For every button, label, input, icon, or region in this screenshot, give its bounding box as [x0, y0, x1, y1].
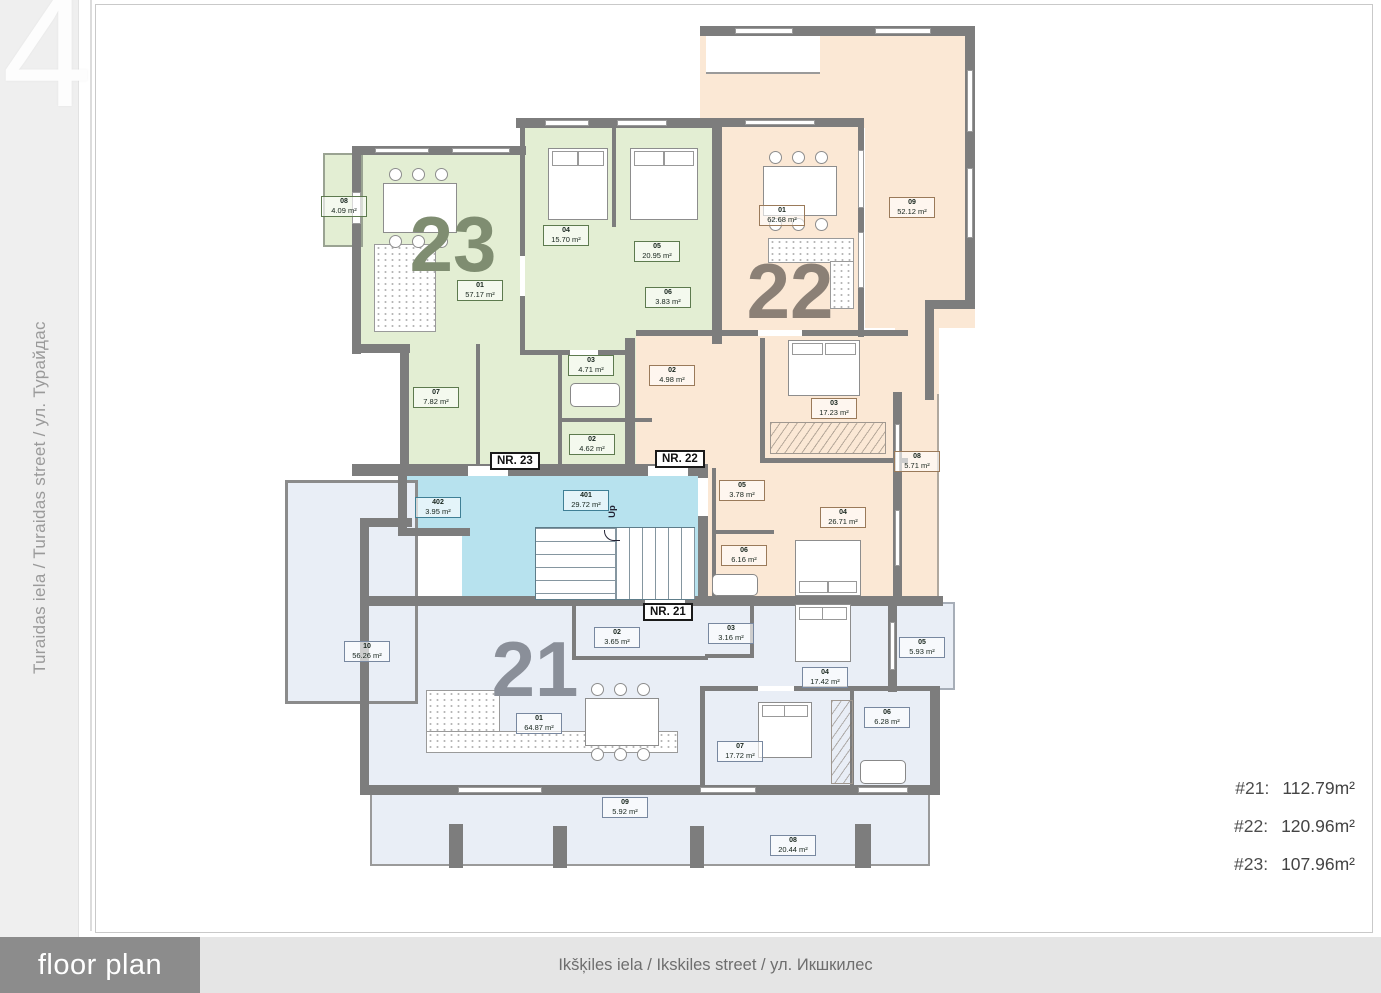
window [875, 28, 931, 34]
window [890, 622, 895, 670]
room-label: 0952.12 m² [889, 197, 935, 218]
wall-segment [352, 146, 361, 354]
bed [630, 148, 698, 220]
window [617, 120, 667, 126]
wall-segment [712, 530, 774, 534]
window [745, 120, 815, 125]
room-label: 023.65 m² [594, 627, 640, 648]
wall-segment [558, 418, 652, 422]
chair [815, 218, 828, 231]
room-label: 034.71 m² [568, 355, 614, 376]
wall-segment [360, 518, 369, 604]
street-name-bottom: Ikšķiles iela / Ikskiles street / ул. Ик… [200, 937, 1381, 993]
apartment-number-22: 22 [735, 252, 845, 330]
room-label: 085.71 m² [894, 451, 940, 472]
wall-segment [398, 528, 470, 536]
bathtub [860, 760, 906, 784]
stairs-flight [536, 528, 615, 599]
street-name-vertical: Turaidas iela / Turaidas street / ул. Ту… [30, 322, 50, 674]
window [545, 120, 589, 126]
bed [788, 340, 860, 396]
floor-plan-page: { "floor": {"number": "4"}, "sidebar": {… [0, 0, 1381, 993]
wall-segment [705, 654, 754, 658]
wall-segment [712, 118, 722, 344]
wall-pier [553, 826, 567, 868]
terrace-notch [706, 30, 820, 74]
summary-label: #22: [1234, 816, 1268, 837]
room-label: 063.83 m² [645, 287, 691, 308]
window [700, 787, 756, 793]
stairs-up-label: Up [607, 505, 618, 518]
bathtub [712, 574, 758, 596]
room-label: 0415.70 m² [543, 225, 589, 246]
door-opening [520, 256, 525, 296]
room-label: 0157.17 m² [457, 280, 503, 301]
summary-row: #21:112.79m² [1100, 778, 1355, 816]
wall-segment [520, 125, 525, 355]
window [967, 70, 973, 132]
bed [548, 148, 608, 220]
room-label: 4023.95 m² [415, 497, 461, 518]
door-label-nr-22: NR. 22 [655, 450, 705, 468]
area-summary: #21:112.79m² #22:120.96m² #23:107.96m² [1100, 778, 1355, 892]
apartment-22-terrace [865, 28, 975, 328]
window [858, 150, 864, 208]
room-label: 066.28 m² [864, 707, 910, 728]
summary-value: 107.96m² [1281, 854, 1355, 875]
chair [637, 748, 650, 761]
wall-pier [690, 826, 704, 868]
room-label: 033.16 m² [708, 623, 754, 644]
chair [614, 683, 627, 696]
wall-segment [930, 688, 940, 795]
room-label: 0164.87 m² [516, 713, 562, 734]
window [452, 148, 510, 153]
wall-segment [760, 338, 765, 460]
room-label: 1056.26 m² [344, 641, 390, 662]
room-label: 055.93 m² [899, 637, 945, 658]
door-opening [758, 686, 794, 691]
door-label-nr-21: NR. 21 [643, 603, 693, 621]
wall-segment [760, 458, 908, 463]
room-label: 40129.72 m² [563, 490, 609, 511]
room-label: 0162.68 m² [759, 205, 805, 226]
floor-plan-title: floor plan [0, 937, 200, 993]
room-label: 0820.44 m² [770, 835, 816, 856]
window [735, 28, 793, 34]
wall-segment [476, 344, 480, 468]
summary-row: #23:107.96m² [1100, 854, 1355, 892]
wall-segment [925, 300, 934, 400]
dining-table [585, 698, 659, 746]
wardrobe-hatch [770, 422, 886, 454]
room-label: 084.09 m² [321, 196, 367, 217]
chair [769, 151, 782, 164]
room-label: 024.62 m² [569, 434, 615, 455]
bed [795, 540, 861, 596]
wall-pier [855, 824, 871, 868]
wall-segment [625, 338, 635, 470]
stairs-flight [615, 528, 695, 599]
room-label: 053.78 m² [719, 480, 765, 501]
wall-segment [572, 656, 708, 660]
door-label-nr-23: NR. 23 [490, 452, 540, 470]
summary-row: #22:120.96m² [1100, 816, 1355, 854]
wall-segment [558, 355, 562, 467]
summary-label: #21: [1235, 778, 1269, 799]
chair [637, 683, 650, 696]
summary-label: #23: [1234, 854, 1268, 875]
chair [591, 748, 604, 761]
room-label: 095.92 m² [602, 797, 648, 818]
chair [412, 168, 425, 181]
window [375, 148, 429, 153]
summary-value: 112.79m² [1282, 778, 1355, 799]
room-label: 0520.95 m² [634, 241, 680, 262]
apartment-number-21: 21 [480, 630, 590, 708]
wall-segment [612, 125, 616, 227]
summary-value: 120.96m² [1281, 816, 1355, 837]
bed [795, 604, 851, 662]
wardrobe-hatch [831, 700, 853, 784]
wall-segment [400, 344, 409, 474]
wall-segment [360, 518, 412, 527]
chair [815, 151, 828, 164]
chair [792, 151, 805, 164]
bed [758, 702, 812, 758]
room-label: 0426.71 m² [820, 507, 866, 528]
chair [435, 168, 448, 181]
window [967, 168, 973, 238]
room-label: 024.98 m² [649, 365, 695, 386]
chair [614, 748, 627, 761]
room-label: 066.16 m² [721, 545, 767, 566]
chair [591, 683, 604, 696]
window [858, 232, 864, 288]
room-label: 0417.42 m² [802, 667, 848, 688]
bathtub [570, 383, 620, 407]
room-label: 0317.23 m² [811, 398, 857, 419]
chair [389, 168, 402, 181]
floor-number: 4 [2, 0, 92, 132]
window [458, 787, 542, 793]
wall-pier [449, 824, 463, 868]
window [895, 510, 900, 566]
door-opening [698, 478, 708, 516]
wall-segment [893, 392, 902, 598]
wall-segment [360, 600, 369, 794]
wall-segment [700, 686, 705, 792]
wall-segment [965, 26, 975, 308]
apartment-number-23: 23 [398, 205, 508, 283]
room-label: 0717.72 m² [717, 741, 763, 762]
room-label: 077.82 m² [413, 387, 459, 408]
window [858, 787, 908, 793]
